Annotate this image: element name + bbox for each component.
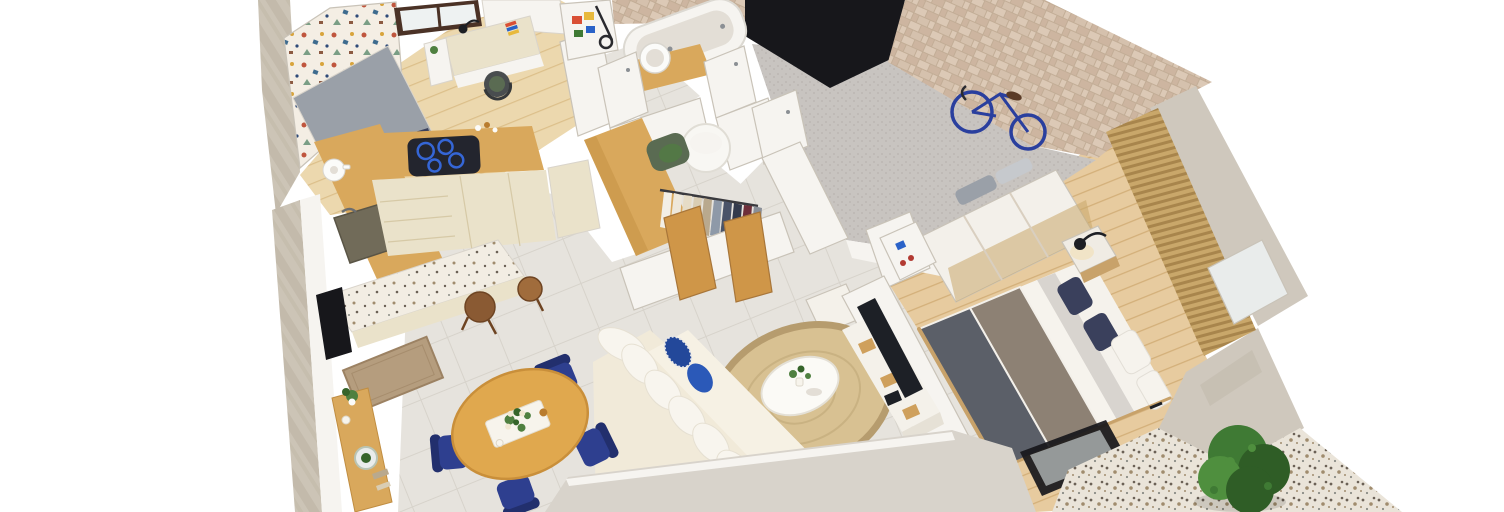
- laundry-hamper: [682, 124, 730, 172]
- floorplan-render: [0, 0, 1504, 512]
- console-table: [332, 388, 392, 512]
- floorplan-svg: [0, 0, 1504, 512]
- induction-hob: [407, 135, 481, 177]
- storage-nook: [560, 0, 618, 60]
